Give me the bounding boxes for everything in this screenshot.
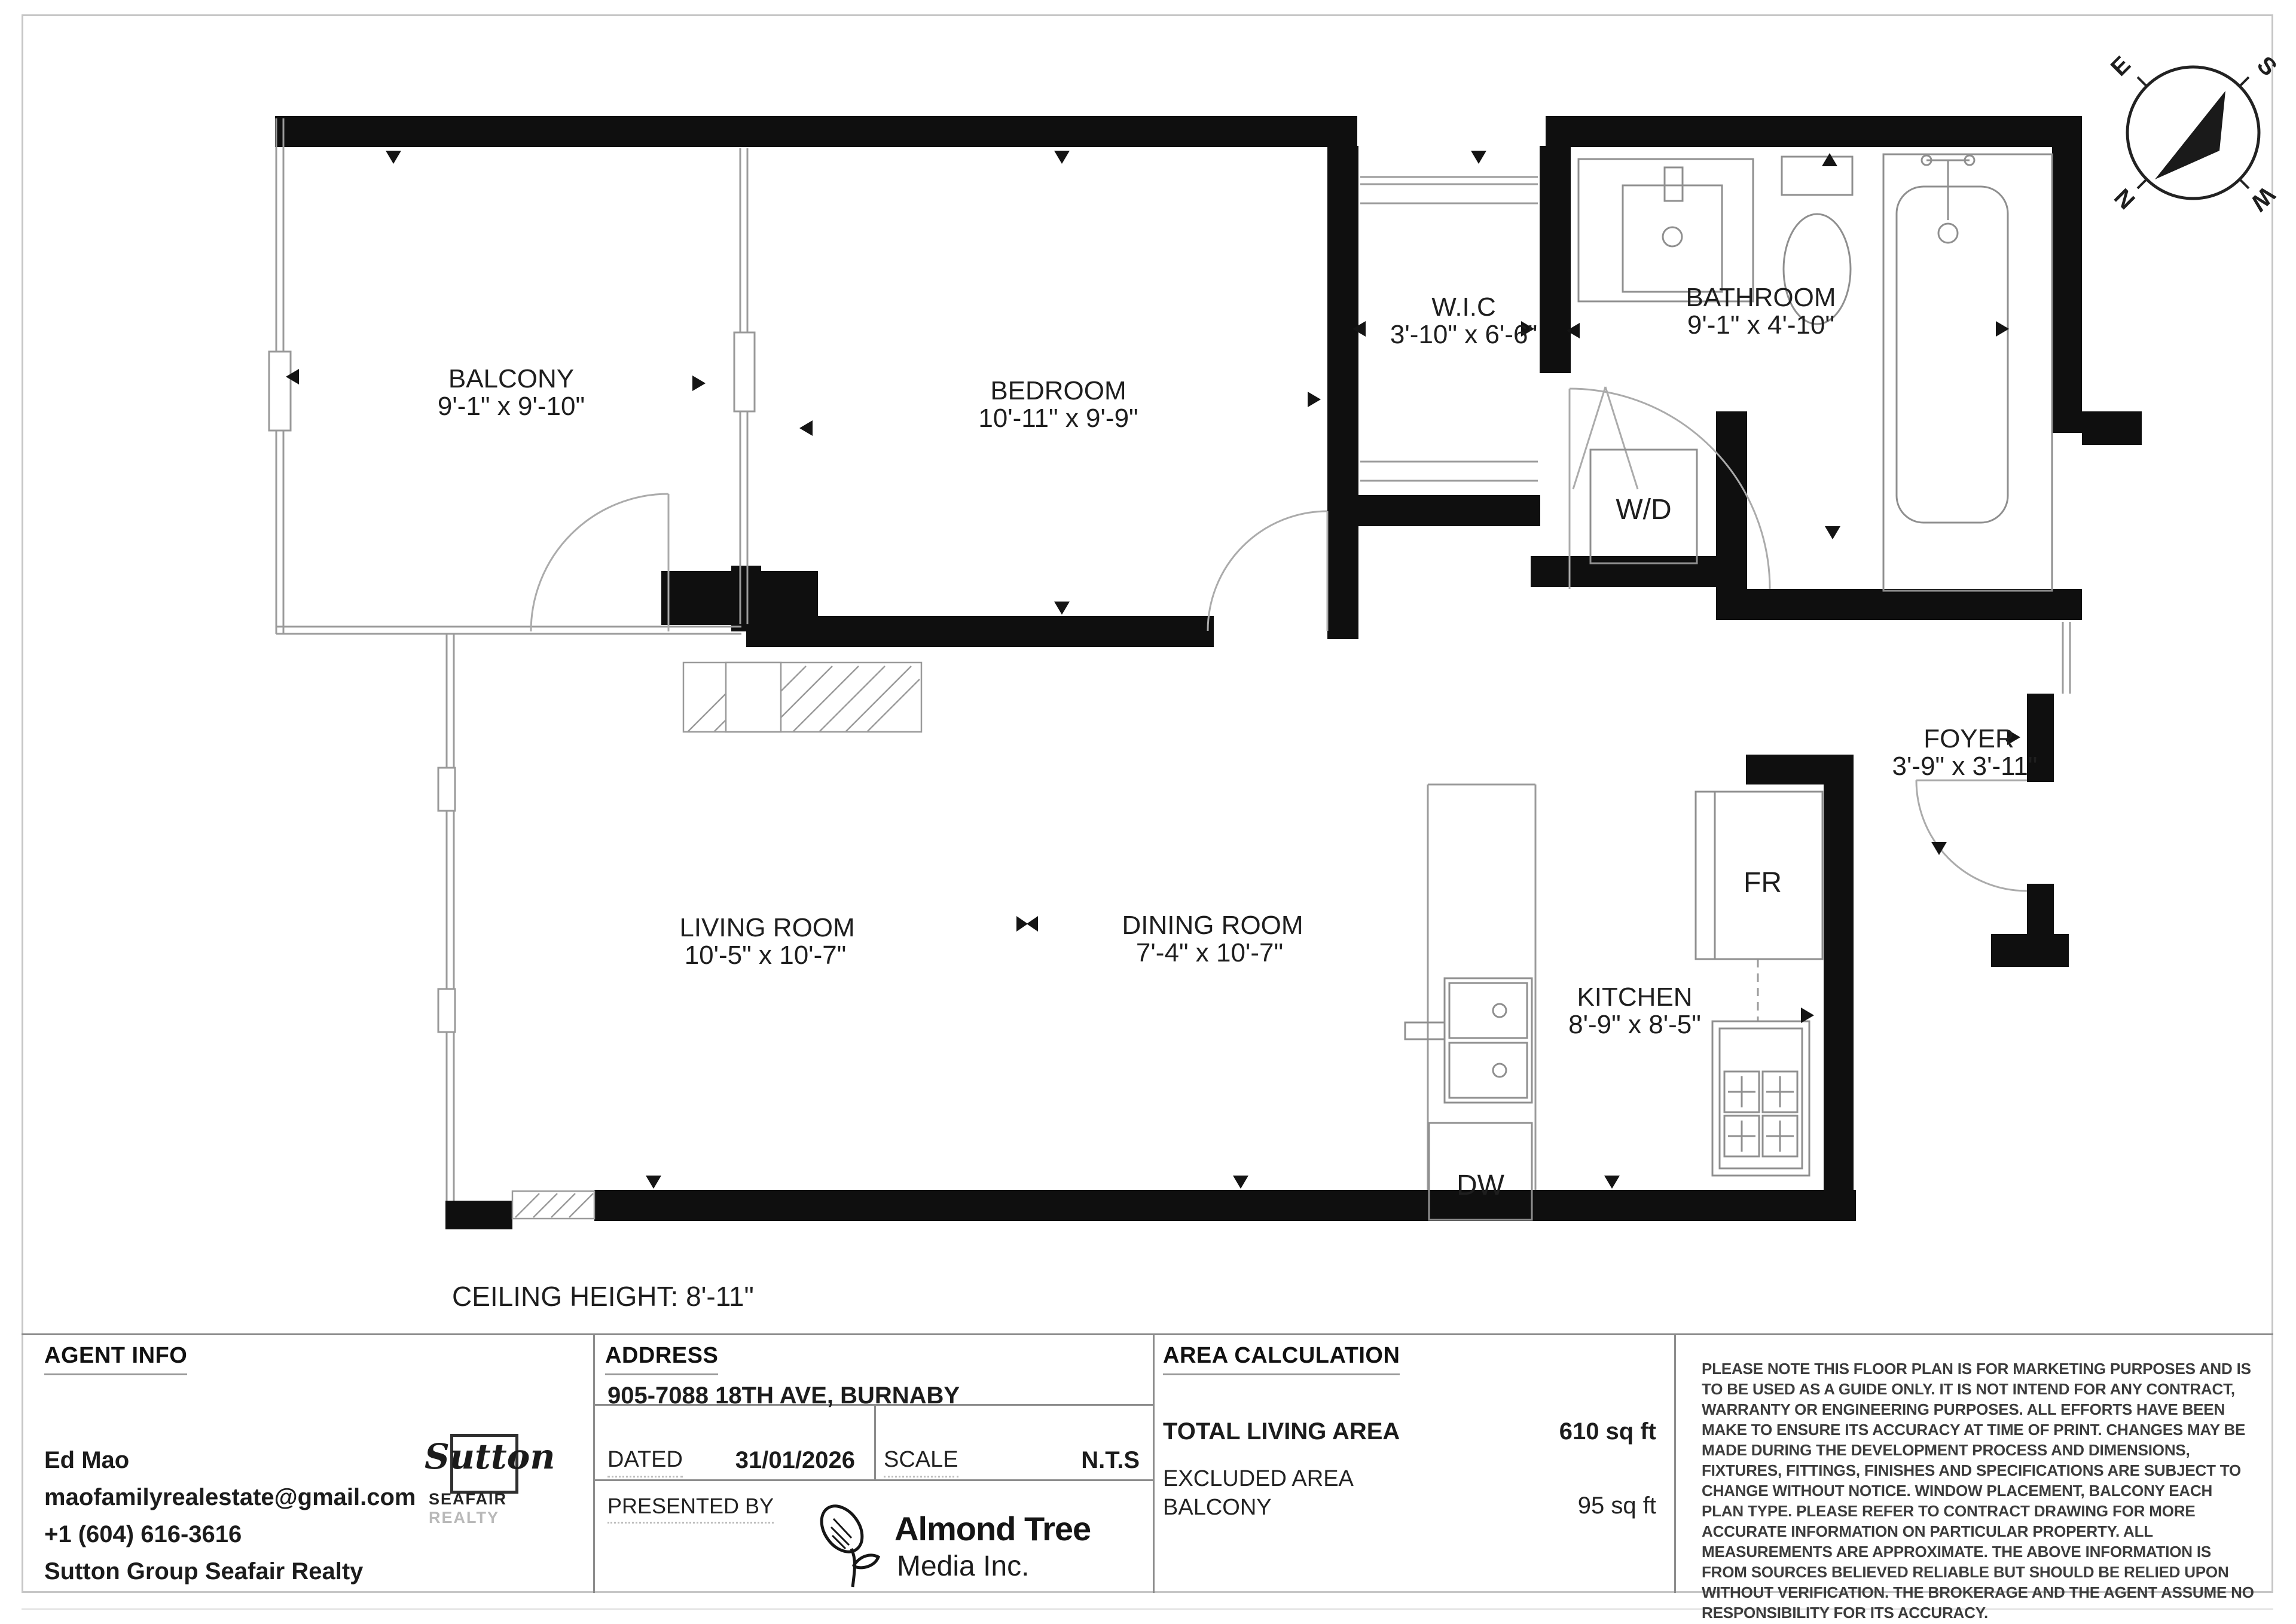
disclaimer-text: PLEASE NOTE THIS FLOOR PLAN IS FOR MARKE… bbox=[1702, 1359, 2258, 1623]
compass-south: S bbox=[2252, 51, 2282, 81]
wic-label: W.I.C bbox=[1431, 292, 1496, 322]
balcony-dims: 9'-1" x 9'-10" bbox=[438, 392, 585, 421]
kitchen-dims: 8'-9" x 8'-5" bbox=[1568, 1010, 1701, 1039]
dishwasher-label: DW bbox=[1457, 1170, 1505, 1201]
fridge-label: FR bbox=[1744, 867, 1782, 899]
divider-agent-address bbox=[593, 1333, 595, 1593]
bathroom-label: BATHROOM bbox=[1686, 283, 1836, 312]
compass-icon: E S N W bbox=[2106, 51, 2282, 216]
scale-label: SCALE bbox=[884, 1447, 958, 1478]
dated-scale-divider bbox=[874, 1404, 876, 1481]
scale-value: N.T.S bbox=[987, 1447, 1140, 1474]
dated-value: 31/01/2026 bbox=[688, 1447, 855, 1474]
foyer-dims: 3'-9" x 3'-11" bbox=[1892, 752, 2038, 781]
sutton-realty-text: REALTY bbox=[429, 1509, 499, 1527]
bedroom-label: BEDROOM bbox=[990, 376, 1126, 405]
balcony-label: BALCONY bbox=[448, 364, 574, 393]
total-living-area-label: TOTAL LIVING AREA bbox=[1163, 1418, 1400, 1445]
living-dims: 10'-5" x 10'-7" bbox=[685, 941, 847, 970]
bathroom-sink bbox=[1578, 159, 1753, 301]
bedroom-dims: 10'-11" x 9'-9" bbox=[978, 404, 1138, 433]
divider-area-disclaimer bbox=[1674, 1333, 1676, 1593]
agent-brokerage: Sutton Group Seafair Realty bbox=[44, 1558, 363, 1585]
panel-top-divider bbox=[22, 1333, 2273, 1335]
light-fixture-marker bbox=[1016, 916, 1028, 932]
area-calculation-heading: AREA CALCULATION bbox=[1163, 1343, 1400, 1375]
floor-plan-page: BALCONY 9'-1" x 9'-10" BEDROOM 10'-11" x… bbox=[0, 0, 2296, 1624]
living-label: LIVING ROOM bbox=[679, 913, 854, 942]
stove bbox=[1712, 1021, 1809, 1176]
presented-by-label: PRESENTED BY bbox=[607, 1494, 774, 1524]
ceiling-height-note: CEILING HEIGHT: 8'-11" bbox=[452, 1281, 754, 1312]
almond-tree-icon bbox=[817, 1502, 889, 1592]
washer-dryer-label: W/D bbox=[1616, 494, 1671, 526]
presenter-name-line1: Almond Tree bbox=[894, 1509, 1091, 1548]
dated-label: DATED bbox=[607, 1447, 683, 1478]
address-value: 905-7088 18TH AVE, BURNABY bbox=[607, 1382, 960, 1409]
kitchen-sink bbox=[1405, 978, 1532, 1103]
compass-west: W bbox=[2245, 181, 2280, 216]
dining-dims: 7'-4" x 10'-7" bbox=[1136, 938, 1283, 967]
bathtub bbox=[1883, 154, 2052, 591]
agent-name: Ed Mao bbox=[44, 1447, 129, 1474]
agent-info-heading: AGENT INFO bbox=[44, 1343, 187, 1375]
agent-email: maofamilyrealestate@gmail.com bbox=[44, 1484, 416, 1511]
address-row-divider-2 bbox=[593, 1479, 1153, 1481]
divider-address-area bbox=[1153, 1333, 1155, 1593]
sutton-logo: Sutton SEAFAIR REALTY bbox=[422, 1429, 547, 1525]
sutton-seafair-text: SEAFAIR bbox=[429, 1490, 507, 1508]
room-labels: BALCONY 9'-1" x 9'-10" BEDROOM 10'-11" x… bbox=[438, 283, 2038, 1312]
foyer-label: FOYER bbox=[1923, 724, 2014, 753]
excluded-area-label: EXCLUDED AREA bbox=[1163, 1466, 1354, 1492]
compass-north: N bbox=[2109, 183, 2141, 214]
walls-layer bbox=[275, 116, 2142, 1229]
thin-walls-layer bbox=[276, 118, 2070, 1201]
agent-phone: +1 (604) 616-3616 bbox=[44, 1521, 242, 1548]
sutton-logo-word: Sutton bbox=[425, 1436, 538, 1477]
excluded-area-value: 95 sq ft bbox=[1435, 1492, 1656, 1519]
sutton-logo-subtitle: SEAFAIR REALTY bbox=[429, 1490, 548, 1527]
bathroom-dims: 9'-1" x 4'-10" bbox=[1687, 310, 1834, 340]
presenter-name-line2: Media Inc. bbox=[897, 1550, 1029, 1583]
compass-east: E bbox=[2106, 51, 2136, 81]
address-heading: ADDRESS bbox=[605, 1343, 718, 1375]
kitchen-label: KITCHEN bbox=[1577, 982, 1692, 1012]
dining-label: DINING ROOM bbox=[1122, 911, 1303, 940]
floor-plan-drawing: BALCONY 9'-1" x 9'-10" BEDROOM 10'-11" x… bbox=[0, 0, 2296, 1335]
excluded-area-item: BALCONY bbox=[1163, 1495, 1272, 1521]
total-living-area-value: 610 sq ft bbox=[1435, 1418, 1656, 1445]
wic-dims: 3'-10" x 6'-6" bbox=[1390, 320, 1537, 349]
